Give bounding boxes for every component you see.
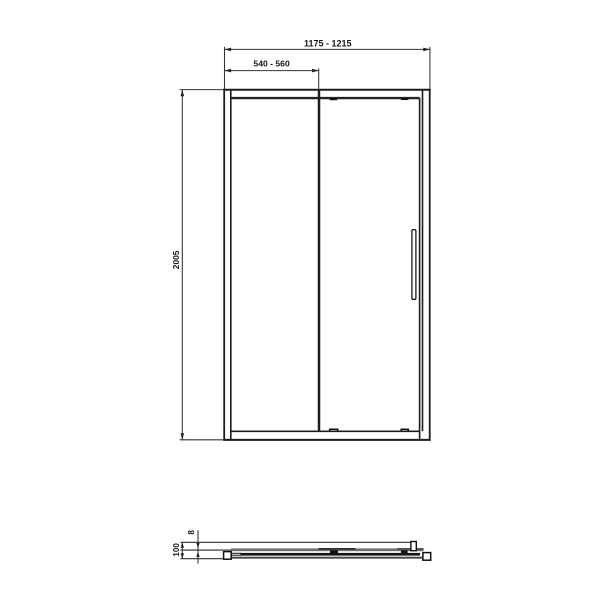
svg-text:2005: 2005 — [171, 250, 181, 269]
svg-text:1175 - 1215: 1175 - 1215 — [304, 38, 352, 48]
svg-text:8: 8 — [187, 530, 196, 535]
svg-text:100: 100 — [172, 543, 181, 557]
svg-text:540 - 560: 540 - 560 — [253, 59, 290, 69]
